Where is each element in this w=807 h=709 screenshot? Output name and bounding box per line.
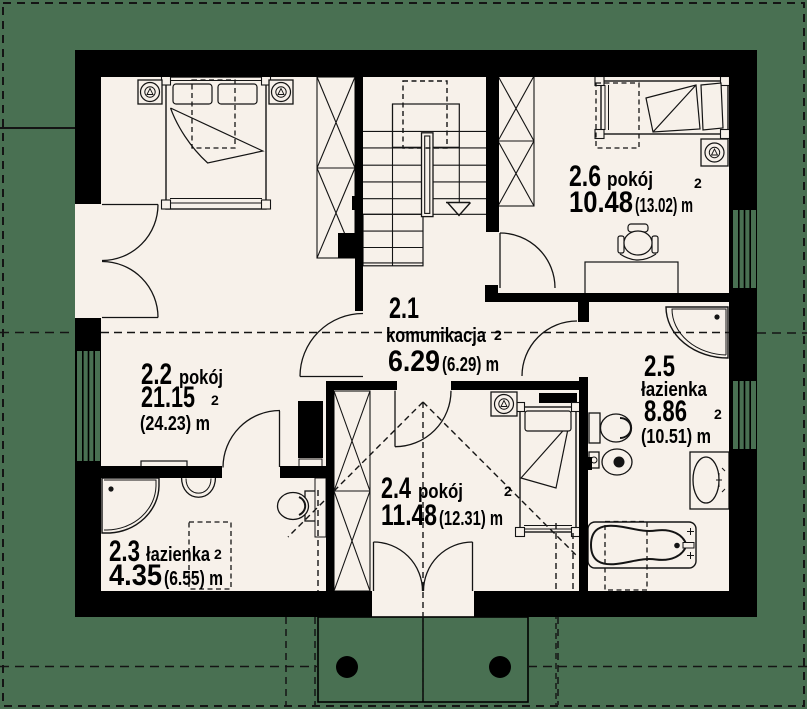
svg-text:2: 2 [494,327,502,343]
svg-text:(10.51) m: (10.51) m [641,426,711,448]
svg-text:10.48: 10.48 [569,186,633,219]
svg-text:21.15: 21.15 [141,381,195,414]
svg-text:komunikacja: komunikacja [386,325,487,347]
svg-text:(24.23) m: (24.23) m [140,413,210,435]
svg-text:2: 2 [504,483,512,499]
svg-text:(13.02) m: (13.02) m [635,195,693,217]
svg-text:(6.29) m: (6.29) m [442,354,499,376]
svg-text:4.35: 4.35 [109,559,162,592]
svg-text:2: 2 [714,406,722,422]
svg-text:2.1: 2.1 [389,292,419,325]
svg-text:6.29: 6.29 [388,345,440,378]
svg-text:2: 2 [694,175,702,191]
svg-text:8.86: 8.86 [644,395,687,428]
svg-text:2: 2 [214,546,222,562]
svg-text:(6.55) m: (6.55) m [164,568,223,590]
svg-text:11.48: 11.48 [381,499,437,532]
svg-text:(12.31) m: (12.31) m [439,508,503,530]
svg-text:2: 2 [211,392,219,408]
